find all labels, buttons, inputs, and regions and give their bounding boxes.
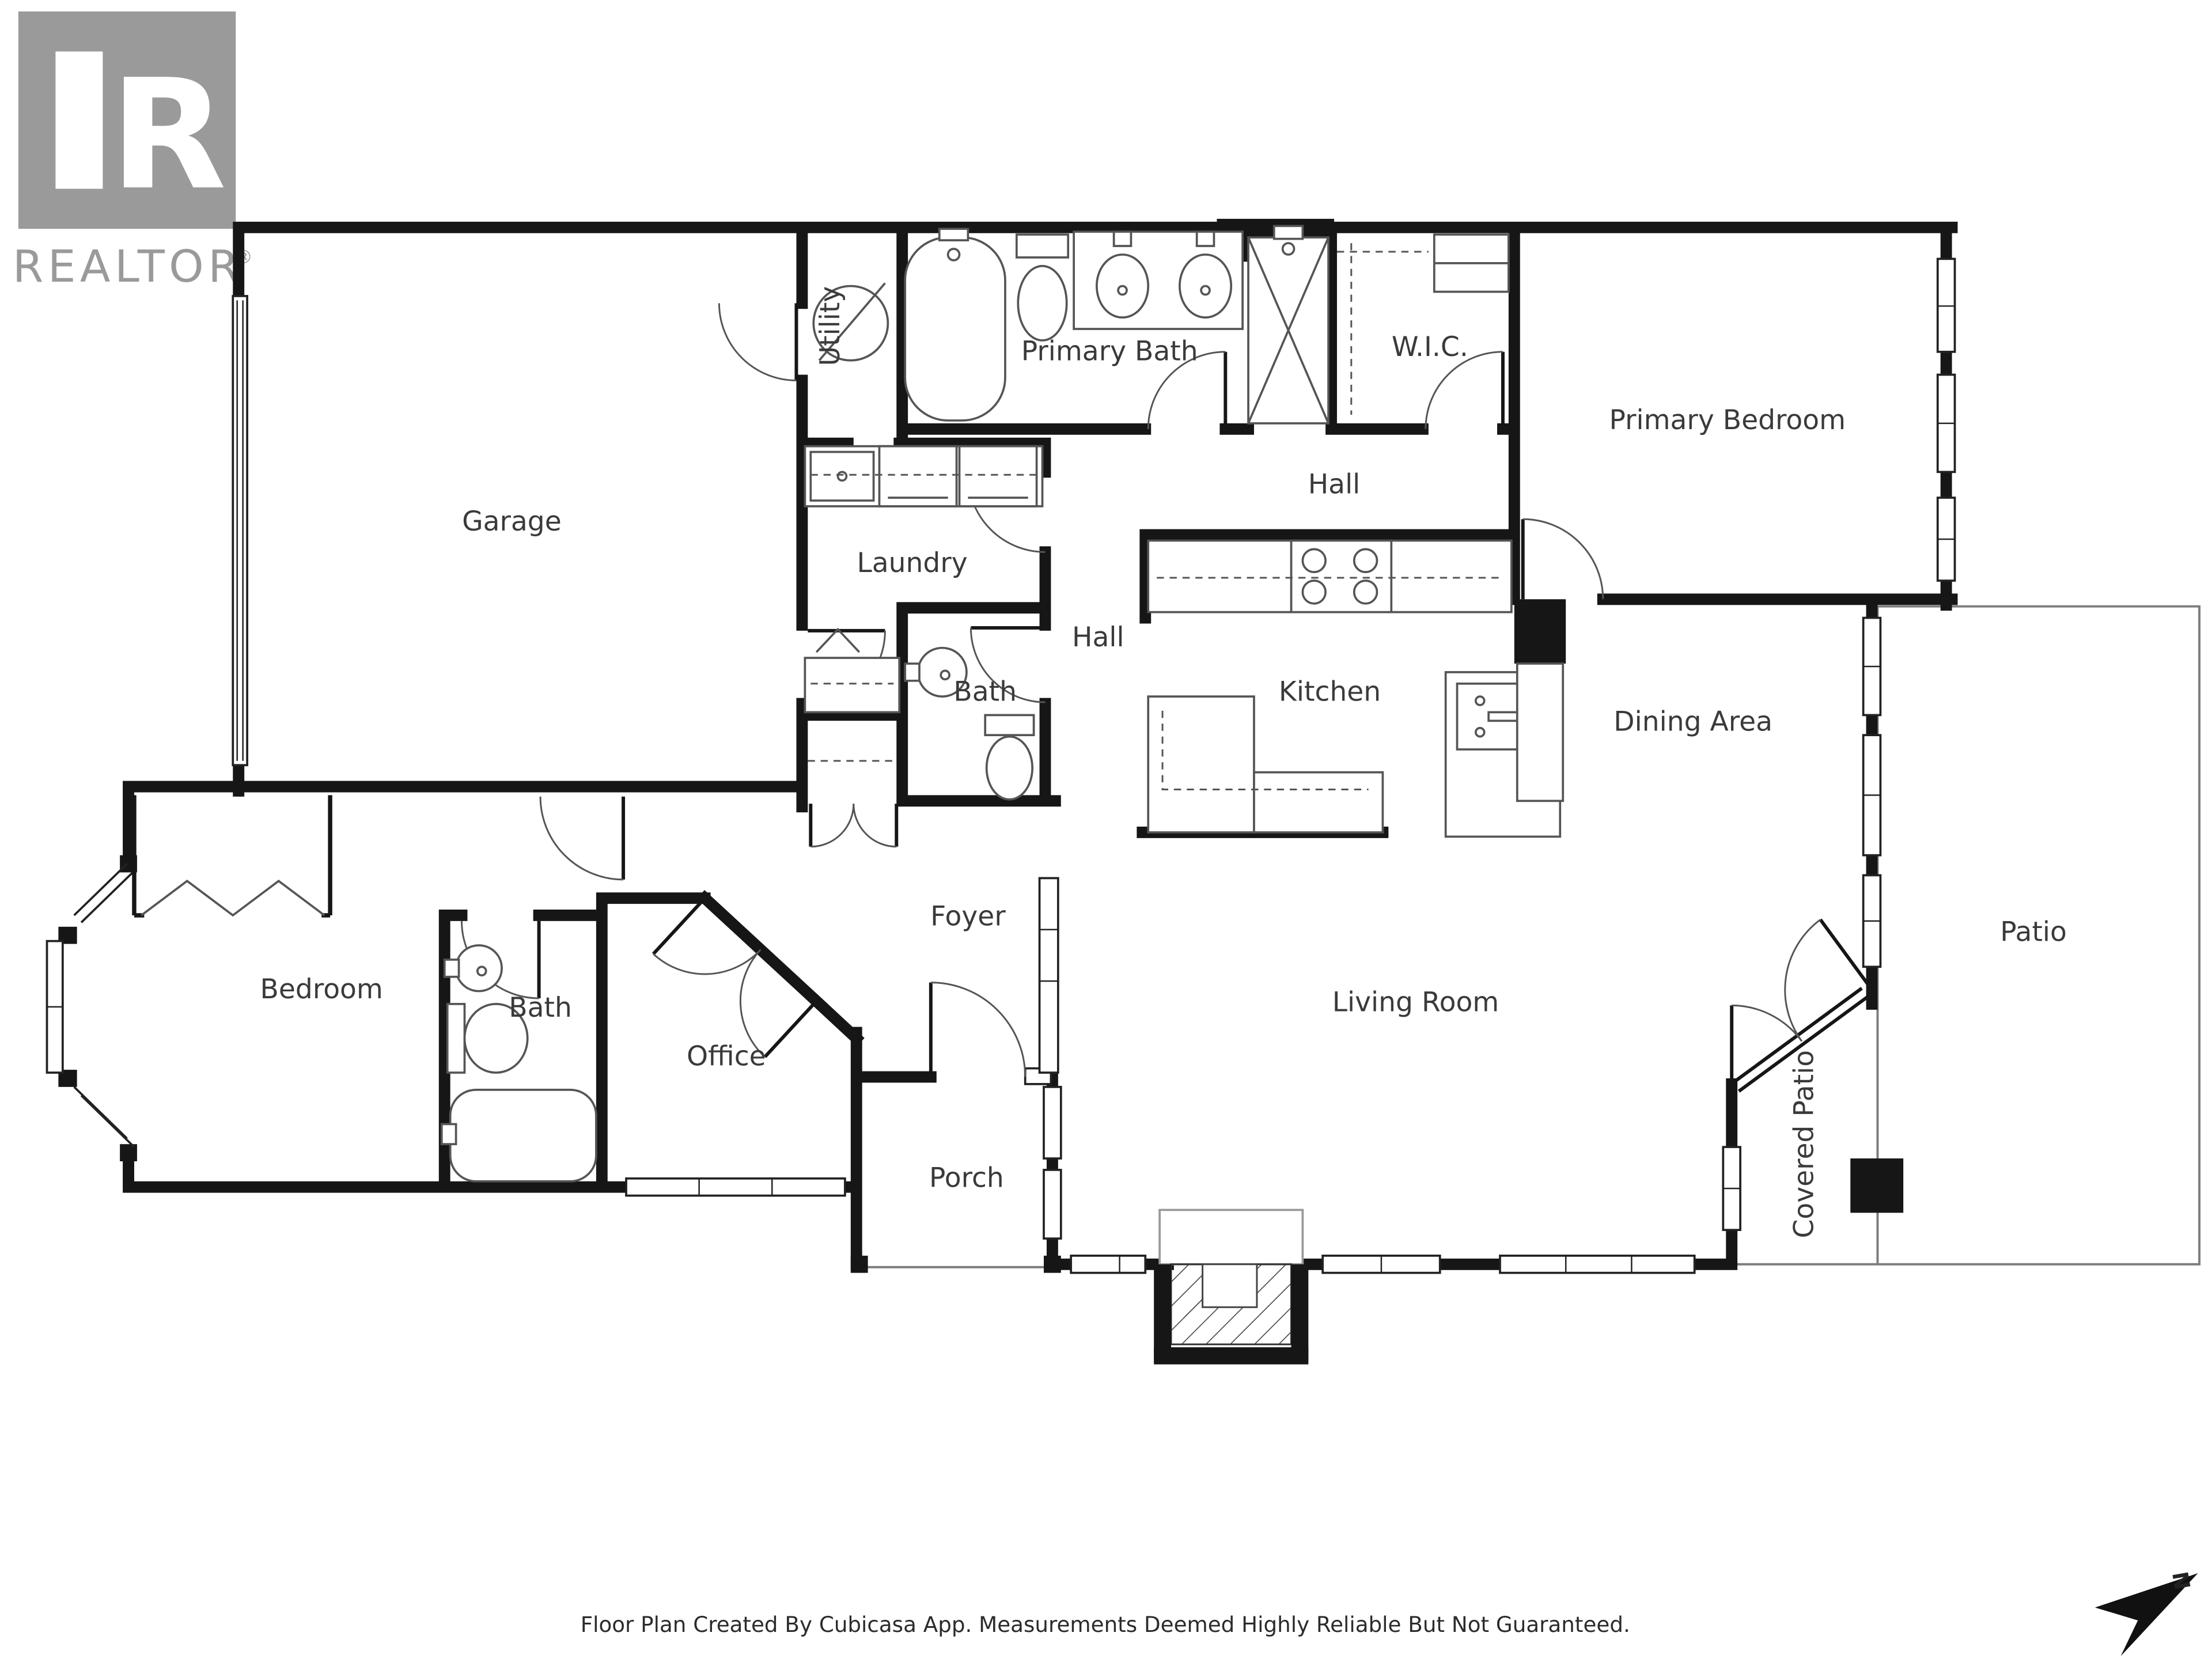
room-label-living-room: Living Room: [1332, 986, 1499, 1018]
tall-cabinet-icon: [1517, 664, 1563, 801]
double-vanity-icon: [1074, 232, 1243, 329]
room-label-laundry: Laundry: [857, 547, 968, 579]
walls: [128, 228, 1952, 1264]
fridge-column: [1514, 599, 1566, 664]
room-label-porch: Porch: [929, 1162, 1004, 1194]
bay-diagonal-windows: [74, 864, 134, 1147]
room-label-primary-bath: Primary Bath: [1021, 336, 1198, 368]
north-label: N: [2167, 1570, 2195, 1592]
bifold-doors-icon: [141, 881, 324, 915]
room-label-office: Office: [687, 1041, 766, 1073]
north-arrow-icon: N: [2095, 1570, 2198, 1656]
window: [626, 1179, 845, 1196]
room-label-bath-lower: Bath: [509, 992, 572, 1024]
tall-window: [1040, 878, 1058, 1073]
closet-shelves-icon: [1434, 234, 1509, 291]
bathtub-icon: [450, 1090, 596, 1181]
room-label-bedroom: Bedroom: [260, 974, 383, 1005]
window: [1500, 1256, 1695, 1273]
bathtub-icon: [905, 237, 1005, 421]
window: [1071, 1256, 1145, 1273]
room-label-hall-upper: Hall: [1308, 469, 1361, 501]
patio-post: [1850, 1158, 1903, 1213]
room-label-covered-patio: Covered Patio: [1789, 1050, 1820, 1238]
realtor-logo: R REALTOR ®: [13, 12, 253, 293]
room-label-patio: Patio: [2000, 916, 2067, 948]
kitchen-counter: [1148, 540, 1512, 612]
room-label-kitchen: Kitchen: [1279, 676, 1381, 708]
porch-window: [1044, 1087, 1061, 1158]
garage-door: [233, 296, 247, 765]
room-label-dining-area: Dining Area: [1613, 706, 1772, 738]
room-label-bath-upper: Bath: [953, 676, 1017, 708]
room-label-primary-bedroom: Primary Bedroom: [1609, 404, 1846, 436]
toilet-icon: [985, 715, 1033, 799]
room-label-foyer: Foyer: [930, 900, 1006, 932]
room-label-utility: Utility: [815, 286, 846, 366]
room-label-hall-center: Hall: [1072, 622, 1124, 653]
footer-disclaimer: Floor Plan Created By Cubicasa App. Meas…: [581, 1612, 1630, 1637]
bedroom-closet: [134, 795, 330, 915]
porch-window: [1044, 1170, 1061, 1238]
realtor-logo-r: R: [110, 47, 227, 224]
floorplan-svg: R REALTOR ®: [0, 0, 2212, 1659]
fixtures: [442, 226, 1563, 1264]
room-label-wic: W.I.C.: [1392, 331, 1468, 363]
fireplace-hearth: [1160, 1210, 1302, 1264]
bath-sink-icon: [445, 945, 502, 991]
floorplan-page: R REALTOR ®: [0, 0, 2212, 1659]
shower-icon: [1248, 226, 1328, 423]
toilet-icon: [1017, 234, 1068, 340]
room-label-garage: Garage: [462, 506, 562, 537]
coat-hook-icon: [816, 629, 859, 652]
realtor-logo-stem: [55, 51, 103, 188]
laundry-counter: [805, 446, 1042, 506]
cabinet-icon: [805, 658, 899, 712]
realtor-wordmark: REALTOR: [13, 241, 243, 293]
kitchen-peninsula: [1148, 696, 1382, 832]
fireplace-icon: [1154, 1264, 1308, 1365]
stove-icon: [1291, 540, 1392, 612]
